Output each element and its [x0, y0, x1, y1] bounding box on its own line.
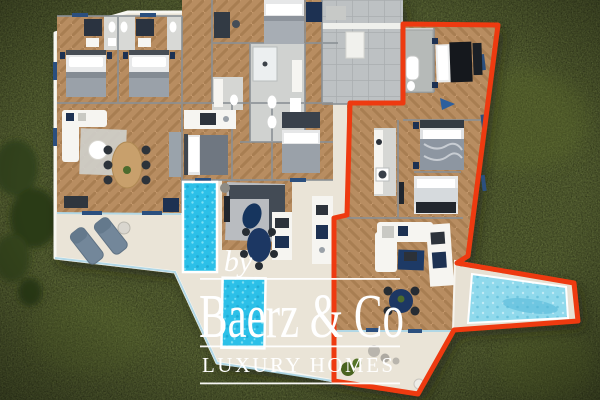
- kitchen-wall-units: [312, 196, 333, 264]
- planter: [220, 183, 230, 193]
- watermark-rule: [200, 383, 400, 385]
- kitchen-units: [426, 223, 454, 287]
- bed: [123, 50, 175, 97]
- dining-table: [104, 142, 151, 188]
- side-table: [118, 222, 130, 234]
- wardrobe: [306, 2, 322, 22]
- tv-panel: [399, 182, 404, 204]
- swimming-pool: [183, 182, 217, 272]
- floor-plan-image: by Baerz & Co LUXURY HOMES: [0, 0, 600, 400]
- floor-plan-canvas: by Baerz & Co LUXURY HOMES: [0, 0, 600, 400]
- sideboard: [64, 196, 88, 208]
- bed: [60, 50, 112, 97]
- bed: [184, 134, 228, 175]
- bed: [414, 176, 458, 214]
- bed: [432, 38, 473, 88]
- coffee-table: [404, 252, 417, 261]
- wardrobe: [169, 132, 181, 177]
- kitchen-counter: [184, 110, 236, 129]
- bed: [413, 120, 464, 170]
- bed: [282, 112, 320, 173]
- desk: [214, 12, 230, 38]
- watermark-brand: Baerz & Co: [199, 283, 404, 351]
- bed: [264, 0, 304, 44]
- toilet: [407, 81, 415, 91]
- cabinet: [163, 198, 179, 212]
- outdoor-shower: [346, 32, 364, 58]
- tv-panel: [136, 19, 154, 36]
- watermark-tagline: LUXURY HOMES: [202, 353, 399, 377]
- watermark-rule: [200, 346, 400, 348]
- bathtub: [406, 56, 419, 80]
- tv-panel: [84, 19, 102, 36]
- watermark-by: by: [224, 245, 253, 278]
- watermark-rule: [200, 278, 400, 280]
- tv-column: [472, 43, 482, 75]
